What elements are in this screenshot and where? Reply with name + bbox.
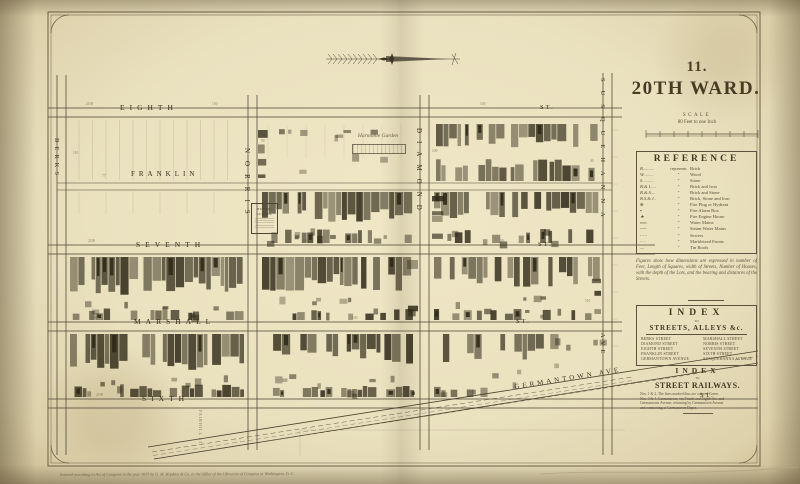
dimension-figure: 100: [480, 103, 485, 107]
dimension-figure: 2100: [96, 394, 103, 398]
atlas-plate: 11. 20TH WARD. SCALE 80 Feet to one Inch…: [0, 0, 800, 484]
garden-pavilion-outline: [352, 144, 406, 154]
dimension-figure: 40: [590, 160, 594, 164]
page-edge-line: [540, 467, 798, 474]
garden-label: Harmonie Garden: [338, 133, 418, 139]
street-label-franklin: FRANKLIN: [131, 171, 198, 178]
street-label-sixth: SIXTH: [142, 395, 189, 403]
reference-title: REFERENCE: [640, 154, 753, 164]
scale-bar: [642, 128, 762, 140]
dimension-figure: 100: [352, 317, 357, 321]
public-school-lines: PUBLICSCHOOL: [252, 207, 277, 216]
page-title: 20TH WARD.: [626, 78, 766, 100]
public-school-stamp: PUBLICSCHOOL: [251, 203, 278, 234]
compass-icon: [318, 34, 468, 84]
railway-index-to: TO: [640, 376, 755, 380]
scale-word: SCALE: [636, 113, 758, 118]
street-label-marshall: MARSHALL: [134, 318, 215, 326]
street-index-left-column: BERKS STREETDIAMOND STREETEIGHTH STREETF…: [641, 337, 689, 362]
dimension-figure: 50: [261, 140, 265, 144]
reference-note: Figures show how dimensions are expresse…: [636, 259, 757, 283]
street-index-entry: GERMANTOWN AVENUE: [641, 357, 689, 362]
street-index-to: TO: [640, 319, 753, 323]
divider: [683, 413, 713, 414]
street-label-berks: BERKS: [53, 138, 60, 179]
dimension-figure: 50: [500, 240, 504, 244]
street-label-fairhill: FAIRHILL ST.: [198, 410, 202, 446]
railway-index-title: INDEX: [640, 366, 755, 375]
dimension-figure: 80: [402, 394, 406, 398]
street-label-diamond: DIAMOND: [415, 128, 422, 218]
dimension-figure: 150: [212, 103, 217, 107]
street-index-entry: SUSQUEHANNA AVENUE: [703, 357, 752, 362]
street-label-susquehanna-ave: AVE: [599, 333, 606, 358]
stamp-line: SCHOOL: [252, 212, 277, 217]
street-index: INDEX TO STREETS, ALLEYS &c. BERKS STREE…: [636, 305, 757, 366]
railway-index-line: and connecting at Germantown Depot.: [640, 406, 755, 411]
street-label-eighth: EIGHTH: [120, 104, 178, 112]
dimension-figure: 110: [73, 152, 78, 156]
railway-index: INDEX TO STREET RAILWAYS. Nos. 1 & 2. Th…: [640, 366, 755, 414]
railway-index-subtitle: STREET RAILWAYS.: [640, 381, 755, 390]
plate-number: 11.: [636, 59, 758, 76]
scale-caption: 80 Feet to one Inch: [636, 120, 758, 125]
stamp-hatch: [255, 218, 274, 228]
street-suffix-sixth: ST.: [700, 393, 715, 400]
dimension-figure: 100: [432, 150, 437, 154]
street-index-subtitle: STREETS, ALLEYS &c.: [640, 324, 753, 332]
dimension-figure: 110: [585, 300, 590, 304]
reference-item: —”Tin Roofs: [640, 245, 753, 251]
railway-index-lines: Nos. 1 & 2. The lines marked thus are co…: [640, 392, 755, 411]
dimension-figure: 235: [302, 240, 307, 244]
street-label-susquehanna: SUSQUEHANNA: [599, 78, 606, 226]
divider: [688, 300, 724, 301]
dimension-figure: 1100: [90, 317, 97, 321]
reference-legend: REFERENCE B..........representsBrickW...…: [636, 151, 757, 254]
street-label-norris: NORRIS: [243, 148, 250, 222]
reference-rows: B..........representsBrickW.........”Woo…: [640, 166, 753, 251]
street-suffix-eighth: ST.: [540, 105, 555, 112]
dimension-figure: 2100: [88, 240, 95, 244]
street-suffix-marshall: ST.: [516, 319, 531, 326]
dimension-figure: 2100: [86, 103, 93, 107]
street-index-right-column: MARSHALL STREETNORRIS STREETSEVENTH STRE…: [703, 337, 752, 362]
divider: [646, 334, 747, 335]
street-label-seventh: SEVENTH: [136, 241, 205, 249]
street-suffix-seventh: ST.: [538, 242, 553, 249]
dimension-figure: 77: [102, 175, 106, 179]
street-index-title: INDEX: [640, 308, 753, 318]
